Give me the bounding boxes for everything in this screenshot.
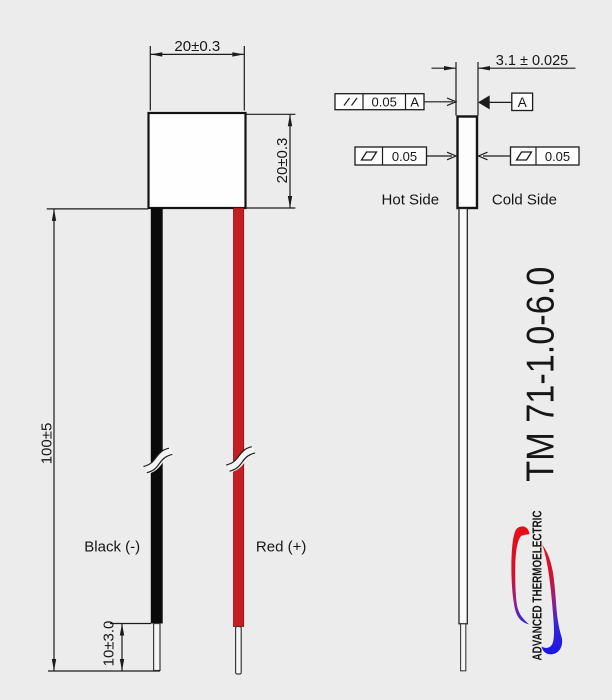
svg-text:0.05: 0.05 (545, 149, 570, 164)
svg-text:20±0.3: 20±0.3 (274, 138, 291, 184)
svg-text:Black (-): Black (-) (84, 539, 140, 556)
svg-text:10±3.0: 10±3.0 (101, 621, 118, 667)
svg-text:Red (+): Red (+) (256, 539, 306, 556)
svg-text:20±0.3: 20±0.3 (174, 38, 220, 55)
svg-text:0.05: 0.05 (372, 94, 397, 109)
svg-text:TM 71-1.0-6.0: TM 71-1.0-6.0 (520, 267, 563, 482)
svg-text:0.05: 0.05 (392, 149, 417, 164)
svg-text:A: A (410, 94, 419, 109)
svg-text:Cold Side: Cold Side (492, 192, 557, 209)
svg-text:A: A (518, 95, 527, 110)
svg-text:3.1 ± 0.025: 3.1 ± 0.025 (496, 53, 568, 69)
svg-text:Hot Side: Hot Side (382, 192, 440, 209)
svg-text:100±5: 100±5 (38, 423, 55, 465)
svg-text:ADVANCED THERMOELECTRIC: ADVANCED THERMOELECTRIC (531, 511, 545, 661)
